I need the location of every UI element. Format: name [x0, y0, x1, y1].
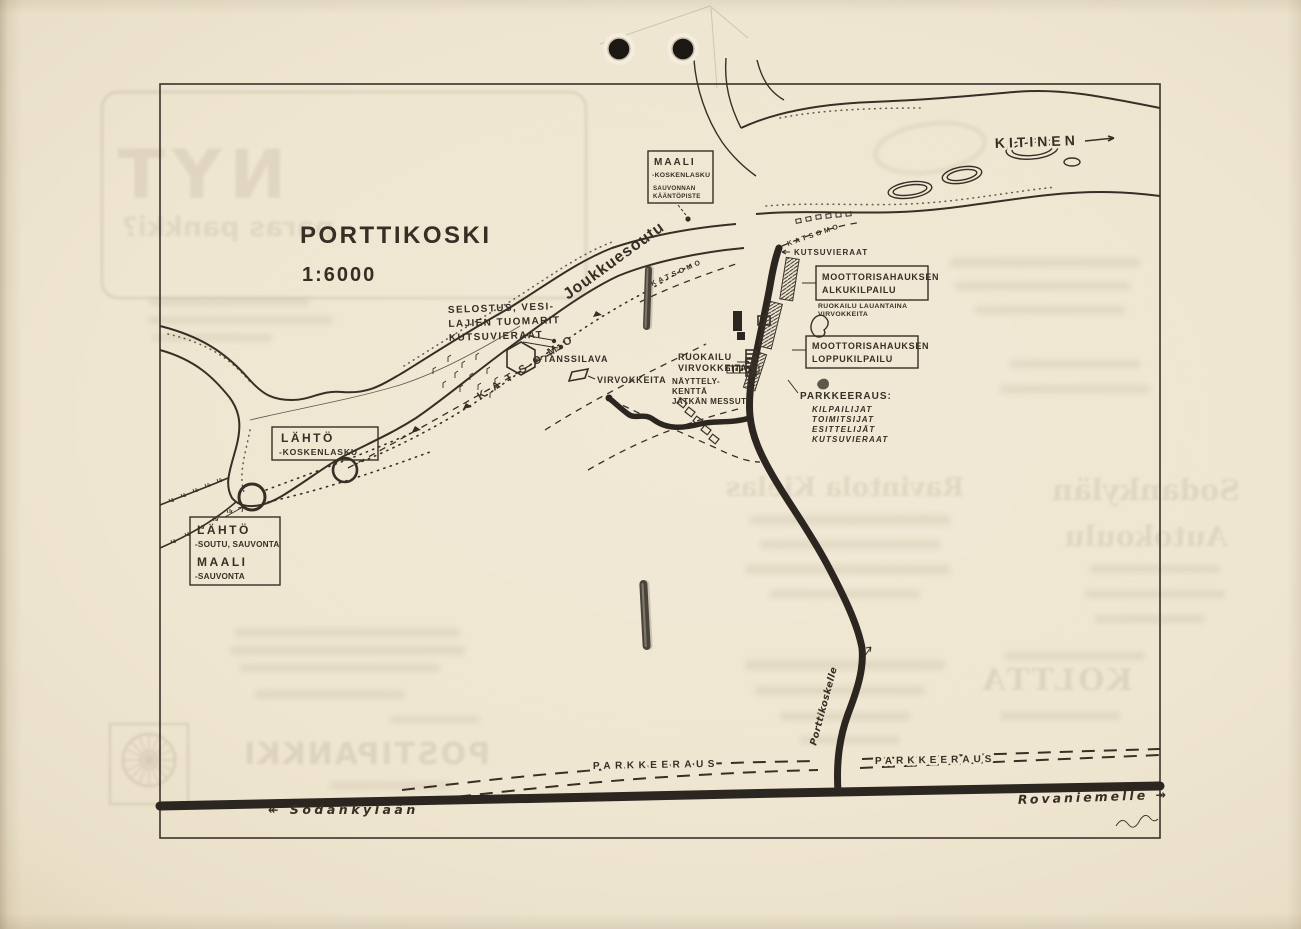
svg-text:-SOUTU, SAUVONTA: -SOUTU, SAUVONTA [195, 540, 279, 549]
svg-text:MAALI: MAALI [654, 157, 696, 168]
bleed-ravintola: Ravintola Kielas [726, 473, 964, 503]
label-porttikoskelle: Porttikoskelle [808, 666, 840, 747]
start-circle-koskenlasku [333, 458, 357, 482]
svg-text:SAUVONNAN KÄÄNTÖPISTE: SAUVONNAN KÄÄNTÖPISTE [653, 185, 701, 200]
label-ruokailu-lauantaina: RUOKAILU LAUANTAINA VIRVOKKEITA [818, 303, 909, 318]
maali-box: MAALI -KOSKENLASKU SAUVONNAN KÄÄNTÖPISTE [648, 151, 713, 203]
punch-hole-right [667, 33, 699, 65]
svg-text:PARKKEERAUS:: PARKKEERAUS: [800, 391, 892, 402]
map-canvas: NYT paras pankki? Ravintola Kielas Sodan… [0, 0, 1301, 929]
maali-line4: KÄÄNTÖPISTE [653, 193, 701, 200]
parkkeeraus-note: PARKKEERAUS: KILPAILIJAT TOIMITSIJAT ESI… [800, 391, 892, 444]
svg-text:-KOSKENLASKU: -KOSKENLASKU [279, 447, 358, 457]
loppukilpailu-line2: LOPPUKILPAILU [812, 354, 893, 364]
alkukilpailu-line2: ALKUKILPAILU [822, 285, 896, 295]
lahto-soutu-maali-box: LÄHTÖ -SOUTU, SAUVONTA MAALI -SAUVONTA [190, 517, 280, 585]
svg-text:MAALI: MAALI [197, 555, 248, 569]
staple-top [643, 266, 654, 330]
svg-text:MOOTTORISAHAUKSEN ALKU: MOOTTORISAHAUKSEN ALKUKILPAILU [822, 272, 942, 295]
label-ruokailu: RUOKAILU VIRVOKKEITA [678, 352, 747, 373]
turning-pool [811, 315, 828, 337]
svg-text:LÄHTÖ: LÄHTÖ [197, 522, 251, 537]
bleed-nyt: NYT [110, 136, 287, 215]
bleed-autokoulu: Autokoulu [1064, 520, 1228, 553]
loppukilpailu-line1: MOOTTORISAHAUKSEN [812, 341, 929, 351]
svg-text:MOOTTORISAHAUKSEN LOPP: MOOTTORISAHAUKSEN LOPPUKILPAILU [812, 341, 932, 364]
label-selostus: SELOSTUS, VESI- LAJIEN TUOMARIT KUTSUVIE… [448, 301, 566, 344]
bleed-postipankki: POSTIPANKKI [242, 737, 490, 772]
label-nayttelykentta: NÄYTTELY- KENTTÄ JÄTKÄN MESSUT [672, 377, 747, 406]
label-kitinen: KITINEN [995, 132, 1080, 151]
maali-line1: MAALI [654, 157, 696, 168]
svg-text:-SAUVONTA: -SAUVONTA [195, 572, 245, 581]
alkukilpailu-line1: MOOTTORISAHAUKSEN [822, 272, 939, 282]
maali-line2: -KOSKENLASKU [652, 172, 710, 179]
label-katsomo-top: KATSOMO [786, 223, 841, 248]
maali-line3: SAUVONNAN [653, 185, 696, 192]
svg-text:KILPAILIJAT TOIMITSIJA: KILPAILIJAT TOIMITSIJAT ESITTELIJÄT KUTS… [812, 405, 888, 444]
staple-bottom [639, 580, 653, 650]
map-title: PORTTIKOSKI [300, 222, 492, 249]
label-parkkeeraus-left: PARKKEERAUS [593, 759, 719, 772]
bleed-illegible-rows [148, 258, 1225, 789]
label-virvokkeita: VIRVOKKEITA [597, 375, 666, 385]
bleed-sodankylan: Sodankylän [1052, 473, 1240, 507]
label-parkkeeraus-right: PARKKEERAUS [875, 754, 996, 767]
cartographer-signature [1116, 815, 1158, 827]
bleed-wheel-logo [110, 724, 188, 804]
svg-text:-KOSKENLASKU: -KOSKENLASKU [652, 172, 710, 179]
roads-layer [160, 248, 1160, 806]
label-sodankylaan: ↞ Sodankylään [268, 802, 419, 817]
kiosk-parallelogram [569, 369, 588, 381]
label-tanssilava: TANSSILAVA [543, 354, 609, 364]
bleed-koltta: KOLTTA [979, 663, 1132, 698]
label-kutsuvieraat: KUTSUVIERAAT [794, 248, 868, 257]
punch-hole-left [603, 33, 635, 65]
alkukilpailu-box: MOOTTORISAHAUKSEN ALKUKILPAILU [816, 266, 942, 300]
scanned-map-page: NYT paras pankki? Ravintola Kielas Sodan… [0, 0, 1301, 929]
hardware-layer [603, 33, 699, 650]
loppukilpailu-box: MOOTTORISAHAUKSEN LOPPUKILPAILU [806, 336, 932, 368]
svg-text:LÄHTÖ: LÄHTÖ [281, 430, 335, 445]
lahto-koskenlasku-box: LÄHTÖ -KOSKENLASKU [272, 427, 378, 460]
leaders [225, 136, 1114, 660]
map-scale: 1:6000 [302, 264, 376, 286]
